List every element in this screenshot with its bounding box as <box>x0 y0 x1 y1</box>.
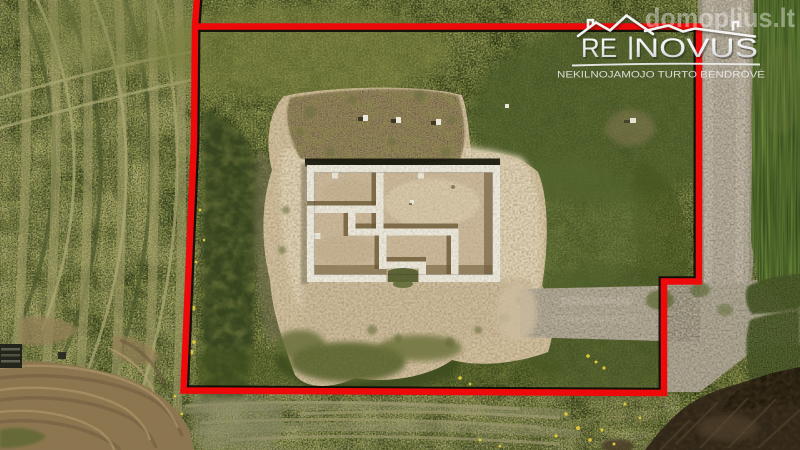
svg-text:RE: RE <box>581 33 617 63</box>
svg-text:NOVUS: NOVUS <box>634 33 758 63</box>
svg-text:NEKILNOJAMOJO TURTO BENDROVĖ: NEKILNOJAMOJO TURTO BENDROVĖ <box>557 70 765 80</box>
